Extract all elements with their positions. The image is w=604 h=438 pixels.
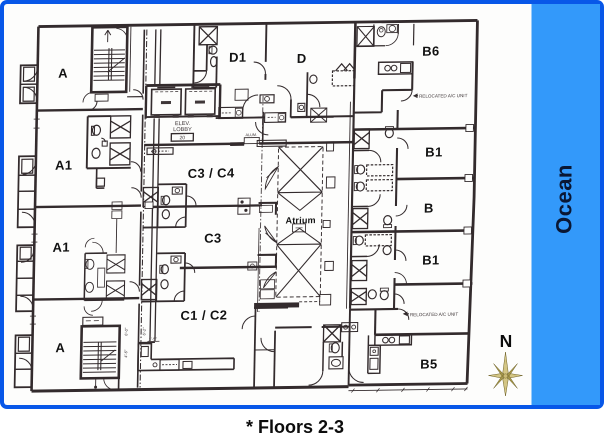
svg-text:LOBBY: LOBBY	[173, 127, 192, 133]
svg-text:A1: A1	[55, 158, 73, 173]
svg-text:RELOCATED A/C UNIT: RELOCATED A/C UNIT	[410, 312, 459, 318]
svg-text:RELOCATED A/C UNIT: RELOCATED A/C UNIT	[419, 93, 468, 99]
svg-text:B: B	[424, 200, 434, 215]
svg-text:B1: B1	[422, 252, 440, 267]
svg-text:6'-0": 6'-0"	[124, 327, 129, 336]
svg-text:D1: D1	[229, 50, 247, 65]
svg-text:6'-2": 6'-2"	[142, 327, 147, 336]
svg-text:Ocean: Ocean	[552, 164, 577, 234]
svg-text:C3 / C4: C3 / C4	[188, 165, 236, 181]
svg-text:A: A	[55, 340, 65, 355]
svg-text:D: D	[297, 51, 307, 66]
svg-text:C1 / C2: C1 / C2	[180, 307, 227, 323]
svg-text:ALUM.: ALUM.	[245, 133, 257, 137]
svg-text:B1: B1	[425, 144, 443, 159]
svg-text:N: N	[500, 331, 513, 351]
svg-text:C3: C3	[204, 230, 222, 245]
svg-text:A1: A1	[52, 240, 70, 255]
svg-text:Atrium: Atrium	[286, 215, 316, 225]
svg-text:B6: B6	[422, 43, 440, 58]
svg-text:* Floors 2-3: * Floors 2-3	[246, 417, 344, 437]
svg-text:A: A	[58, 66, 68, 81]
svg-text:1'-5": 1'-5"	[148, 336, 157, 341]
svg-text:20: 20	[179, 135, 185, 141]
svg-text:4'-6": 4'-6"	[123, 349, 128, 358]
svg-text:B5: B5	[420, 356, 438, 371]
